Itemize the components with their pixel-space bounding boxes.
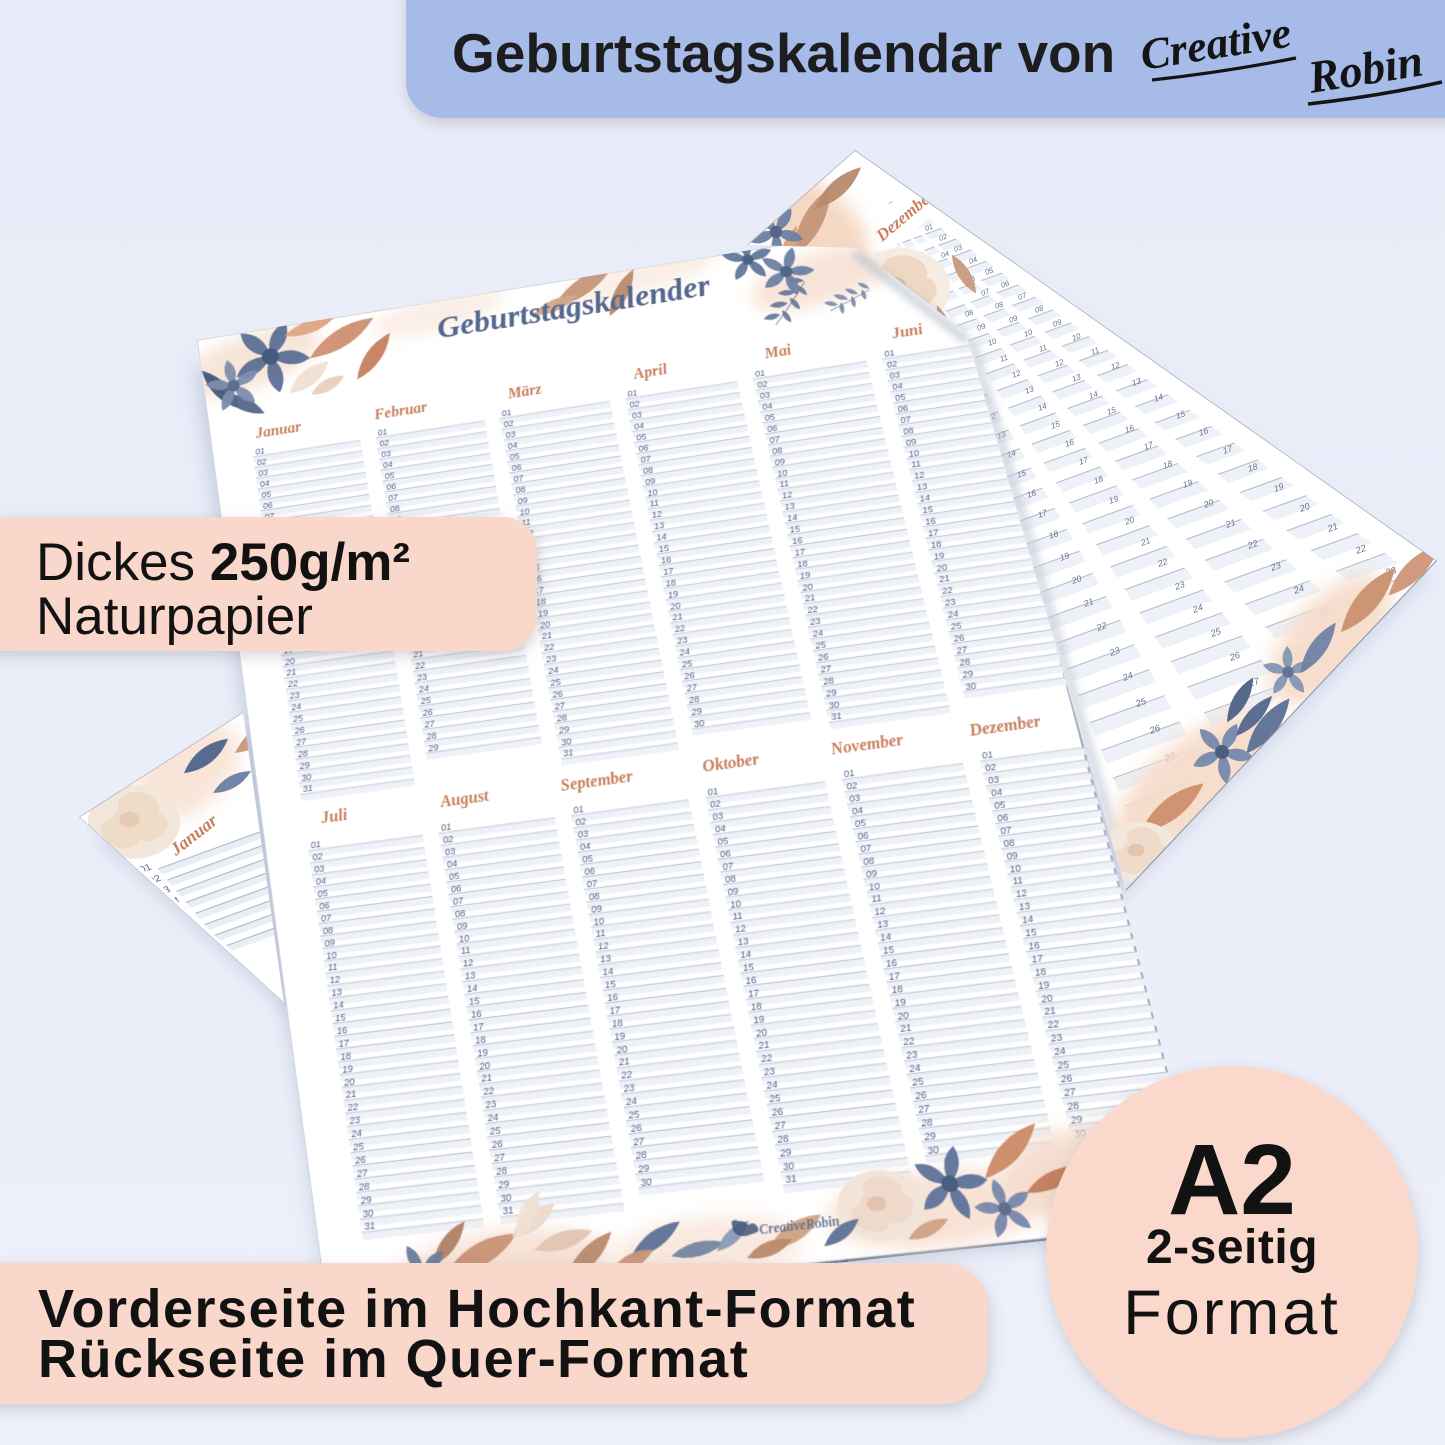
svg-text:A2: A2: [1168, 1124, 1296, 1236]
svg-text:2-seitig: 2-seitig: [1146, 1221, 1318, 1274]
svg-text:Geburtstagskalendar von: Geburtstagskalendar von: [452, 22, 1115, 84]
svg-text:Rückseite im Quer-Format: Rückseite im Quer-Format: [38, 1329, 749, 1389]
svg-text:Naturpapier: Naturpapier: [36, 587, 313, 646]
svg-text:Dickes 250g/m²: Dickes 250g/m²: [36, 533, 410, 592]
svg-text:Format: Format: [1123, 1278, 1341, 1348]
